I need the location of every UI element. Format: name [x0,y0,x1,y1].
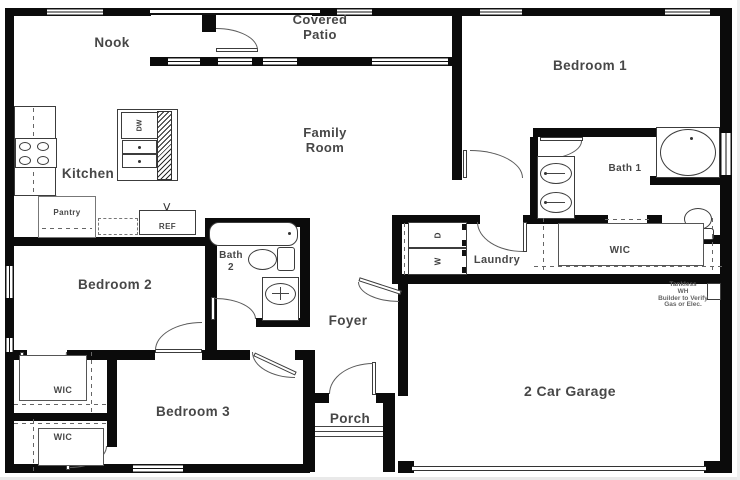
stove-burner [37,156,49,165]
wall [5,237,217,246]
stove-burner [19,142,31,151]
door-arc [215,298,256,319]
wall [720,8,732,473]
ref-swing-mark: ⋁ [160,202,174,211]
label-line: Bath [205,250,257,262]
window [480,8,522,16]
stove-burner [37,142,49,151]
floor-plan: DW ⋁ D W Nook Covered P [0,0,740,480]
closet-dash [712,218,713,274]
closet-entry-dash [605,219,649,220]
label-line: Room [283,140,367,155]
label-line: Family [283,125,367,140]
door-arc [155,322,202,350]
wall [202,350,250,360]
appliance-tab [462,267,466,273]
note-line: Gas or Elec. [634,302,732,309]
room-label-bedroom2: Bedroom 2 [45,277,185,293]
door-arc [358,282,399,302]
room-label-pantry: Pantry [40,208,94,217]
faucet-mark [544,172,547,175]
room-label-bedroom1: Bedroom 1 [520,58,660,74]
wall [300,218,310,322]
wall [398,284,408,396]
washer-label: W [433,258,442,266]
room-label-bath1: Bath 1 [593,163,657,175]
closet-dash [14,404,107,405]
room-label-wic-upper: WIC [38,385,88,395]
room-label-garage: 2 Car Garage [488,383,652,399]
door-arc [252,352,295,378]
wall [392,215,402,277]
wall [452,8,462,180]
closet-dash [33,419,34,472]
room-label-bath2: Bath 2 [205,250,257,273]
label-line: Patio [272,27,368,42]
toilet-tank [277,247,295,271]
faucet-mark [544,201,547,204]
wall [303,393,315,472]
garage-door [412,466,706,471]
porch-steps [315,426,383,438]
window [263,57,297,66]
room-label-family-room: Family Room [283,125,367,155]
wall [376,393,395,403]
room-label-porch: Porch [312,411,388,427]
faucet-mark [545,202,565,203]
door-panel [463,150,467,178]
room-label-foyer: Foyer [310,313,386,329]
wall [303,352,315,398]
door-arc [477,222,523,252]
sink-drain [138,160,141,163]
wall [704,461,732,473]
dryer: D [408,222,467,248]
wall [14,413,107,421]
shower-basin [660,129,716,176]
room-label-laundry: Laundry [458,254,536,267]
window [665,8,710,16]
faucet-mark [280,287,281,300]
window [720,133,732,175]
laundry-dash [404,223,405,275]
window [5,338,14,352]
window [47,8,103,16]
window [5,266,14,298]
door-panel [523,222,527,252]
closet-dash [534,266,722,267]
water-heater-note: Tankless WH Builder to Verify Gas or Ele… [634,282,732,309]
wall [383,393,395,472]
window [133,464,183,473]
label-line: Covered [272,12,368,27]
shower-drain [690,137,693,140]
tub-faucet [288,232,291,235]
window [218,57,252,66]
appliance-tab [462,224,466,230]
island-bar [157,111,172,180]
bathtub [209,222,298,246]
stove-burner [19,156,31,165]
faucet-mark [545,173,565,174]
closet-dash [543,218,544,274]
pantry-shelf-line [42,228,92,229]
room-label-covered-patio: Covered Patio [272,12,368,42]
wall [313,393,329,403]
counter-shelf-dashed [98,218,138,235]
dishwasher-label: DW [136,120,143,132]
wall [107,352,117,447]
closet-dash [14,423,107,424]
dryer-label: D [433,232,442,238]
door-arc [216,28,258,50]
appliance-tab [462,240,466,246]
door-arc [329,363,373,394]
window [372,57,448,66]
sink-drain [138,146,141,149]
dishwasher: DW [121,112,158,139]
room-label-ref: REF [146,222,189,231]
room-label-nook: Nook [72,35,152,51]
room-label-kitchen: Kitchen [50,166,126,182]
window [168,57,200,66]
room-label-wic-master: WIC [596,245,644,257]
room-label-wic-lower: WIC [38,432,88,442]
room-label-bedroom3: Bedroom 3 [122,404,264,420]
door-arc [470,150,523,178]
label-line: 2 [205,262,257,274]
